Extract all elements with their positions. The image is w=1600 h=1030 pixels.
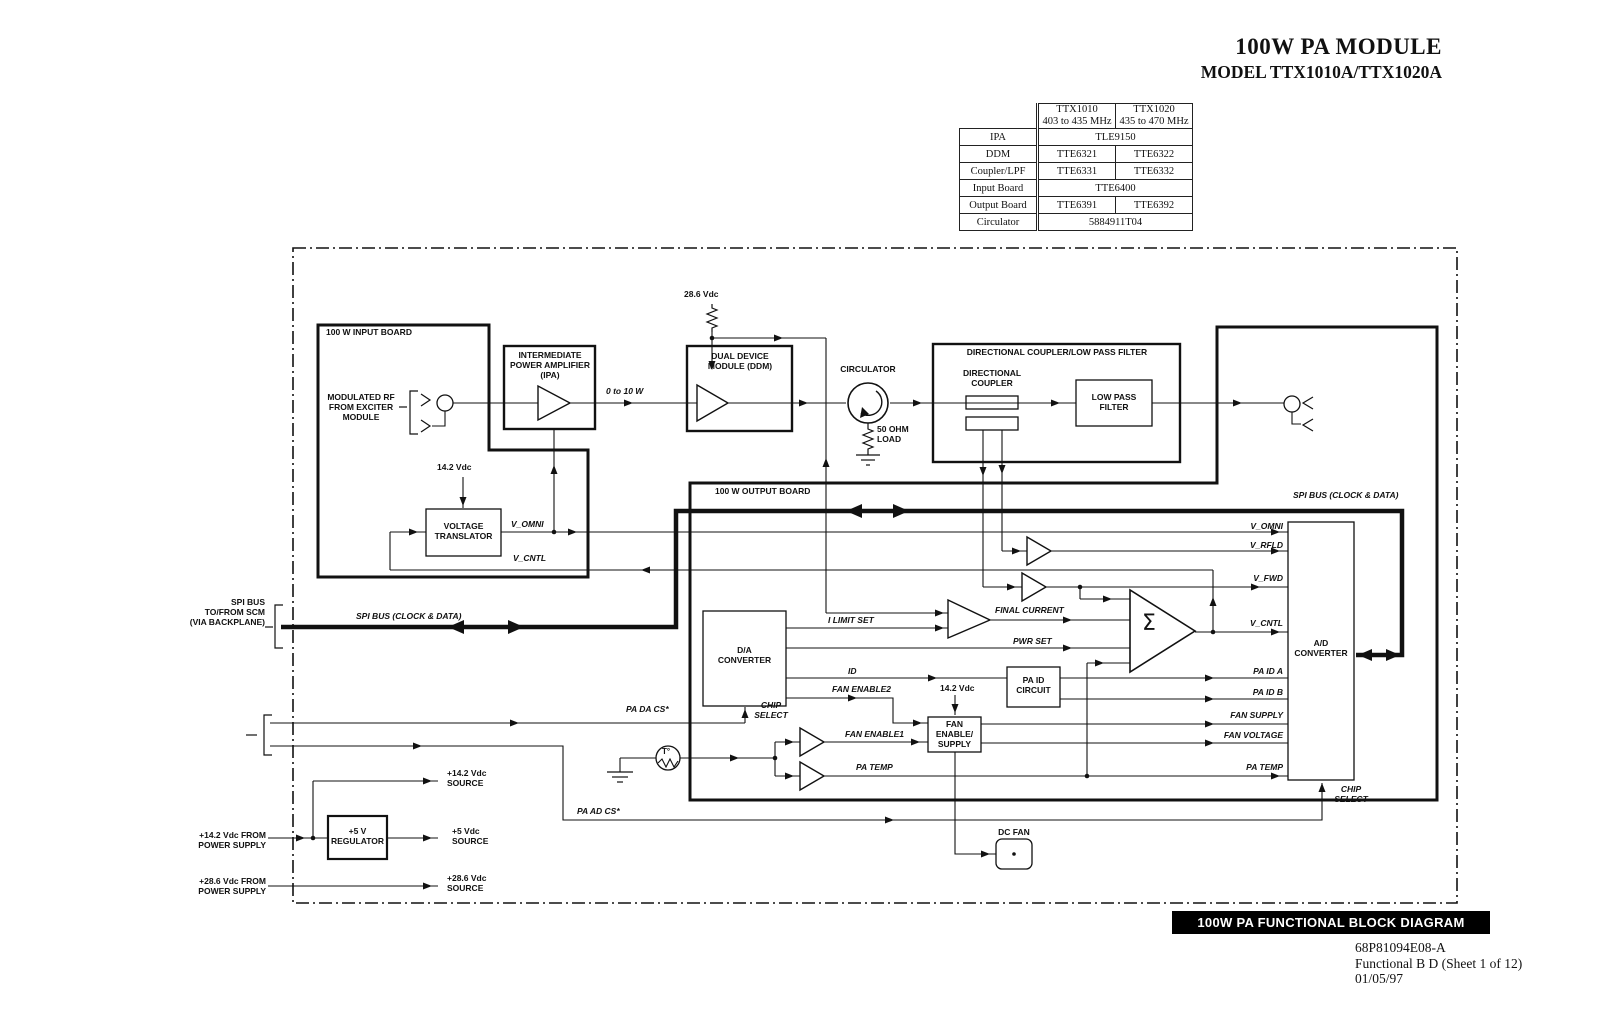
spi-backplane-label: SPI BUS TO/FROM SCM (VIA BACKPLANE): [180, 597, 265, 628]
dir-coupler-label: DIRECTIONAL COUPLER: [962, 368, 1022, 388]
page-title: 100W PA MODULE: [1000, 34, 1442, 60]
schematic-page: 100W PA MODULE MODEL TTX1010A/TTX1020A T…: [0, 0, 1600, 1030]
pa-id-circuit-label: PA ID CIRCUIT: [1009, 675, 1058, 695]
ddm-amp-triangle: [697, 385, 728, 421]
ipa-label: INTERMEDIATE POWER AMPLIFIER (IPA): [506, 350, 594, 381]
table-row: Coupler/LPF TTE6331 TTE6332: [960, 163, 1193, 180]
pa-temp-left-label: PA TEMP: [856, 762, 893, 772]
row-value: TTE6322: [1116, 146, 1193, 163]
pa-temp-buffer: [800, 762, 824, 790]
final-current-comparator: [948, 600, 990, 638]
wires: [268, 332, 1322, 886]
output-board-label: 100 W OUTPUT BOARD: [715, 486, 810, 496]
fan-enable2-label: FAN ENABLE2: [832, 684, 891, 694]
spi-bus-top-label: SPI BUS (CLOCK & DATA): [1293, 490, 1398, 500]
sheet-info: Functional B D (Sheet 1 of 12): [1355, 956, 1522, 972]
final-current-label: FINAL CURRENT: [995, 605, 1064, 615]
rf-output-connector: [1284, 396, 1300, 412]
ddm-label: DUAL DEVICE MODULE (DDM): [690, 351, 790, 371]
page-subtitle: MODEL TTX1010A/TTX1020A: [1000, 62, 1442, 83]
table-row: Output Board TTE6391 TTE6392: [960, 197, 1193, 214]
doc-number: 68P81094E08-A: [1355, 940, 1522, 956]
input-board-label: 100 W INPUT BOARD: [326, 327, 412, 337]
pwr-set-label: PWR SET: [1013, 636, 1052, 646]
row-value: TLE9150: [1038, 129, 1193, 146]
col-header-ttx1020: TTX1020 435 to 470 MHz: [1116, 104, 1193, 129]
row-label: Coupler/LPF: [960, 163, 1038, 180]
pa-da-cs-label: PA DA CS*: [626, 704, 669, 714]
v-rfld-label: V_RFLD: [1180, 540, 1283, 550]
parts-table: TTX1010 403 to 435 MHz TTX1020 435 to 47…: [959, 103, 1193, 231]
coupler-lpf-title: DIRECTIONAL COUPLER/LOW PASS FILTER: [940, 347, 1174, 357]
table-row: IPA TLE9150: [960, 129, 1193, 146]
fan-enable1-label: FAN ENABLE1: [845, 729, 904, 739]
footer-block: 68P81094E08-A Functional B D (Sheet 1 of…: [1355, 940, 1522, 987]
col-header-ttx1010: TTX1010 403 to 435 MHz: [1038, 104, 1116, 129]
pa-temp-right-label: PA TEMP: [1180, 762, 1283, 772]
row-value: TTE6321: [1038, 146, 1116, 163]
id-label: ID: [848, 666, 857, 676]
v-cntl-left-label: V_CNTL: [513, 553, 546, 563]
supply-28v-label: +28.6 Vdc FROM POWER SUPPLY: [186, 876, 266, 896]
row-value: TTE6391: [1038, 197, 1116, 214]
coupler-element-bottom: [966, 417, 1018, 430]
da-converter-label: D/A CONVERTER: [705, 645, 784, 665]
component-boxes: [328, 344, 1354, 869]
row-value: 5884911T04: [1038, 214, 1193, 231]
lpf-label: LOW PASS FILTER: [1078, 392, 1150, 412]
modulated-rf-label: MODULATED RF FROM EXCITER MODULE: [322, 392, 400, 423]
row-value: TTE6392: [1116, 197, 1193, 214]
row-label: DDM: [960, 146, 1038, 163]
table-row: DDM TTE6321 TTE6322: [960, 146, 1193, 163]
summing-sigma-label: Σ: [1142, 613, 1156, 635]
da-chip-select-label: CHIP SELECT: [750, 700, 792, 720]
title-block: 100W PA MODULE MODEL TTX1010A/TTX1020A: [1000, 34, 1442, 83]
row-value: TTE6332: [1116, 163, 1193, 180]
row-value: TTE6400: [1038, 180, 1193, 197]
table-row: Input Board TTE6400: [960, 180, 1193, 197]
v-fwd-label: V_FWD: [1180, 573, 1283, 583]
summing-amplifier: [1130, 590, 1195, 672]
ad-chip-select-label: CHIP SELECT: [1330, 784, 1372, 804]
table-header-row: TTX1010 403 to 435 MHz TTX1020 435 to 47…: [960, 104, 1193, 129]
dc-fan-label: DC FAN: [995, 827, 1033, 837]
circulator-label: CIRCULATOR: [833, 364, 903, 374]
doc-date: 01/05/97: [1355, 971, 1522, 987]
source-14v-label: +14.2 Vdc SOURCE: [447, 768, 486, 788]
vfwd-buffer-triangle: [1022, 573, 1046, 601]
fan-enable1-buffer: [800, 728, 824, 756]
translator-label: VOLTAGE TRANSLATOR: [428, 521, 499, 541]
ipa-amp-triangle: [538, 386, 570, 420]
fan-supply-label: FAN SUPPLY: [1180, 710, 1283, 720]
diagram-title-banner: 100W PA FUNCTIONAL BLOCK DIAGRAM: [1172, 911, 1490, 934]
vrfld-buffer-triangle: [1027, 537, 1051, 565]
row-label: IPA: [960, 129, 1038, 146]
pa-ad-cs-label: PA AD CS*: [577, 806, 620, 816]
source-28v-label: +28.6 Vdc SOURCE: [447, 873, 486, 893]
regulator-label: +5 V REGULATOR: [330, 826, 385, 846]
rf-input-connector: [437, 395, 453, 411]
bias-resistor: [707, 304, 717, 332]
load-label: 50 OHM LOAD: [877, 424, 909, 444]
fan-voltage-label: FAN VOLTAGE: [1180, 730, 1283, 740]
row-value: TTE6331: [1038, 163, 1116, 180]
source-5v-label: +5 Vdc SOURCE: [452, 826, 488, 846]
supply-14v-label: +14.2 Vdc FROM POWER SUPPLY: [186, 830, 266, 850]
table-corner-cell: [960, 104, 1038, 129]
v-omni-left-label: V_OMNI: [511, 519, 544, 529]
load-resistor: [863, 423, 873, 455]
bias-28v-label: 28.6 Vdc: [684, 289, 719, 299]
pa-id-b-label: PA ID B: [1180, 687, 1283, 697]
row-label: Circulator: [960, 214, 1038, 231]
row-label: Output Board: [960, 197, 1038, 214]
dc-fan-dot: [1012, 852, 1016, 856]
table-row: Circulator 5884911T04: [960, 214, 1193, 231]
v-omni-right-label: V_OMNI: [1180, 521, 1283, 531]
pa-id-a-label: PA ID A: [1180, 666, 1283, 676]
temp-sensor-label: T°: [662, 748, 670, 756]
fan-enable-supply-label: FAN ENABLE/ SUPPLY: [930, 719, 979, 750]
fan-14v-label: 14.2 Vdc: [940, 683, 975, 693]
ad-converter-label: A/D CONVERTER: [1290, 638, 1352, 658]
translator-14v-label: 14.2 Vdc: [437, 462, 472, 472]
i-limit-set-label: I LIMIT SET: [828, 615, 874, 625]
row-label: Input Board: [960, 180, 1038, 197]
rf-power-label: 0 to 10 W: [606, 386, 643, 396]
spi-bus-mid-label: SPI BUS (CLOCK & DATA): [356, 611, 461, 621]
v-cntl-right-label: V_CNTL: [1180, 618, 1283, 628]
